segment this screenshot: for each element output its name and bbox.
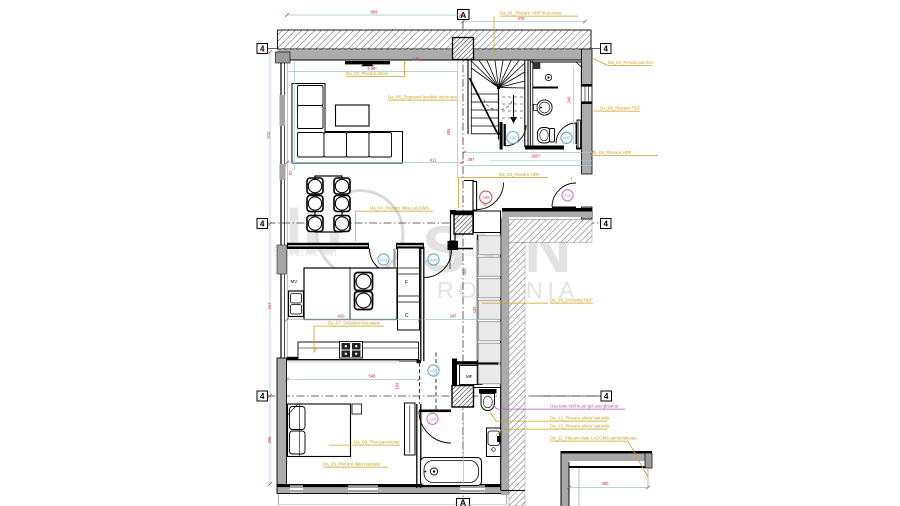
svg-text:455: 455 bbox=[446, 128, 451, 136]
svg-text:435: 435 bbox=[472, 306, 477, 314]
svg-text:369: 369 bbox=[462, 268, 467, 276]
svg-text:A03: A03 bbox=[380, 257, 388, 262]
svg-text:Da_07_Detaliere bucatarie: Da_07_Detaliere bucatarie bbox=[328, 321, 381, 326]
svg-text:Da_03_Placare HDF: Da_03_Placare HDF bbox=[499, 172, 540, 177]
svg-text:4: 4 bbox=[604, 392, 609, 401]
svg-text:376: 376 bbox=[518, 16, 526, 21]
svg-text:148: 148 bbox=[413, 57, 421, 62]
svg-text:Da_04_Placare dala LaCOMS: Da_04_Placare dala LaCOMS bbox=[370, 206, 429, 211]
svg-text:Da_08_Dressing HDF: Da_08_Dressing HDF bbox=[550, 298, 593, 303]
svg-text:4: 4 bbox=[260, 45, 265, 54]
svg-text:Da_04_Placare HDF: Da_04_Placare HDF bbox=[591, 150, 632, 155]
svg-text:via: via bbox=[458, 244, 475, 259]
svg-text:Da_09_Plan pavimente: Da_09_Plan pavimente bbox=[354, 440, 400, 445]
svg-text:296: 296 bbox=[267, 436, 272, 444]
svg-text:A09: A09 bbox=[430, 368, 438, 373]
svg-text:Da_06_Placare HDF: Da_06_Placare HDF bbox=[600, 106, 641, 111]
svg-text:A06: A06 bbox=[509, 135, 517, 140]
svg-text:347: 347 bbox=[450, 314, 458, 319]
svg-text:Da_11_Placare dala LACOMS pers: Da_11_Placare dala LACOMS personalizata bbox=[550, 436, 637, 441]
svg-text:Da_05_Placare dala naturala: Da_05_Placare dala naturala bbox=[323, 462, 380, 467]
svg-text:A05: A05 bbox=[482, 195, 490, 200]
svg-text:MV: MV bbox=[291, 279, 298, 284]
svg-text:x: x bbox=[571, 177, 573, 181]
svg-text:MF: MF bbox=[466, 374, 473, 379]
svg-text:240: 240 bbox=[567, 96, 572, 104]
svg-text:A11: A11 bbox=[564, 193, 572, 198]
svg-text:Da_02_Placare beton: Da_02_Placare beton bbox=[346, 71, 389, 76]
svg-text:Da_05_Zugraveli lavabile inter: Da_05_Zugraveli lavabile interioare bbox=[388, 95, 458, 100]
svg-text:A04: A04 bbox=[430, 257, 438, 262]
svg-text:420: 420 bbox=[338, 314, 346, 319]
svg-text:360: 360 bbox=[602, 481, 610, 486]
svg-text:548: 548 bbox=[369, 374, 377, 379]
svg-text:Da_04_Pervaz parchet: Da_04_Pervaz parchet bbox=[608, 60, 654, 65]
svg-text:3607: 3607 bbox=[531, 154, 541, 159]
svg-text:4: 4 bbox=[260, 220, 265, 229]
svg-text:Da_01_Placare HDP inca arata: Da_01_Placare HDP inca arata bbox=[500, 11, 562, 16]
svg-text:F: F bbox=[405, 280, 408, 286]
svg-text:Da_12_Placare plinta naturala: Da_12_Placare plinta naturala bbox=[550, 416, 610, 421]
svg-text:911: 911 bbox=[430, 158, 437, 163]
svg-text:Usa baie veche pe gol usa glis: Usa baie veche pe gol usa glisanta bbox=[550, 404, 619, 409]
svg-text:347: 347 bbox=[267, 302, 272, 310]
svg-text:4: 4 bbox=[260, 392, 265, 401]
svg-text:A10: A10 bbox=[429, 417, 437, 422]
svg-text:154: 154 bbox=[395, 382, 400, 390]
svg-text:A07: A07 bbox=[563, 136, 571, 141]
svg-text:82: 82 bbox=[288, 170, 293, 175]
svg-text:989: 989 bbox=[371, 10, 379, 15]
svg-text:Da_13_Placare plinta naturala: Da_13_Placare plinta naturala bbox=[550, 424, 610, 429]
svg-text:397: 397 bbox=[468, 157, 476, 162]
svg-text:510: 510 bbox=[266, 131, 271, 139]
svg-text:4: 4 bbox=[603, 220, 608, 229]
svg-text:90: 90 bbox=[483, 203, 487, 207]
svg-text:A: A bbox=[460, 498, 467, 506]
svg-text:4: 4 bbox=[603, 45, 608, 54]
svg-text:C: C bbox=[405, 313, 409, 319]
